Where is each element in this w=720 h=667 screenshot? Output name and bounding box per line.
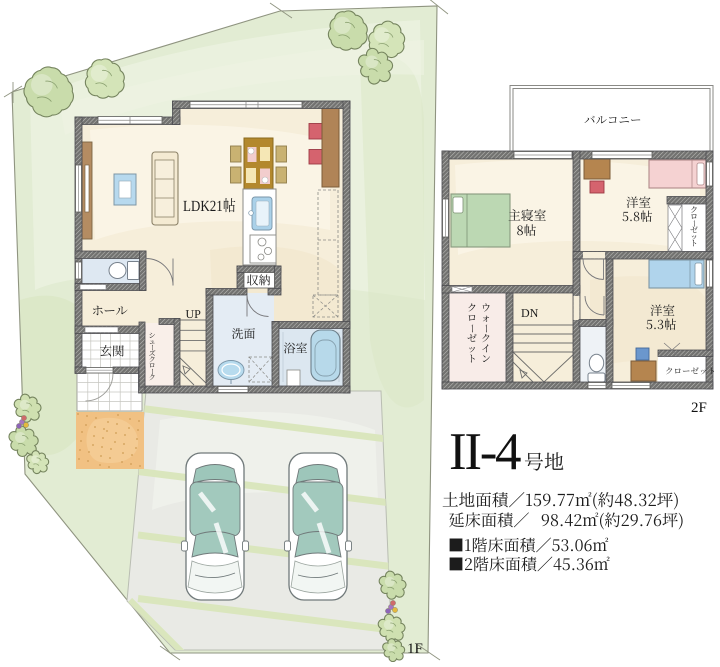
svg-text:II-4: II-4 xyxy=(449,423,521,481)
svg-text:1F: 1F xyxy=(407,641,423,657)
svg-text:2F: 2F xyxy=(691,400,707,416)
